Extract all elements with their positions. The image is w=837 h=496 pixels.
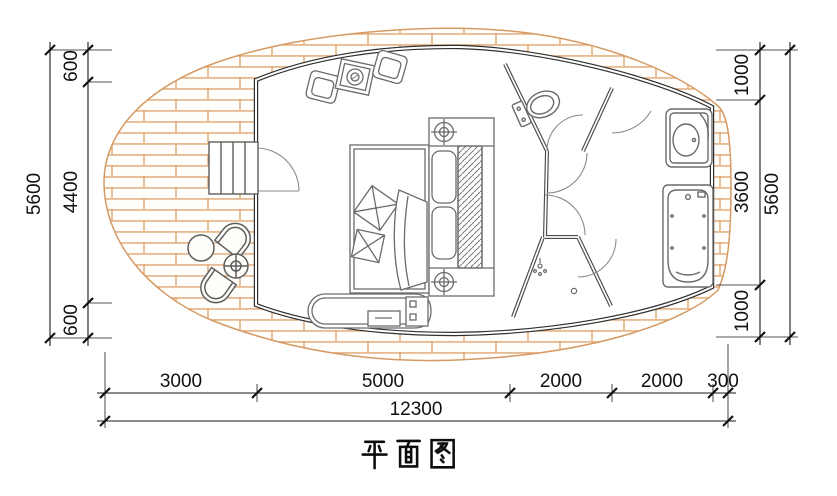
dim-right-total: 5600 (762, 173, 783, 215)
dim-right-seg-2: 1000 (732, 290, 753, 332)
tv-cabinet (308, 294, 431, 328)
dim-bottom-seg-2: 2000 (540, 371, 582, 392)
dim-right-seg-0: 1000 (732, 54, 753, 96)
dim-left-seg-2: 600 (61, 304, 82, 336)
dim-right-seg-1: 3600 (732, 171, 753, 213)
dim-bottom-seg-4: 300 (707, 371, 739, 392)
pillow (432, 207, 456, 259)
dim-bottom-seg-3: 2000 (641, 371, 683, 392)
bathtub (663, 185, 713, 287)
double-bed (350, 145, 429, 293)
dim-bottom-seg-1: 5000 (362, 371, 404, 392)
dim-left-total: 5600 (24, 173, 45, 215)
side-table (335, 59, 374, 95)
wardrobe (458, 146, 482, 268)
cushion (351, 229, 384, 262)
dim-left-seg-0: 600 (61, 50, 82, 82)
dim-left-seg-1: 4400 (61, 171, 82, 213)
page-title: 平面图 (362, 436, 454, 469)
floor-plan-canvas: 5600 600 4400 600 1000 3600 1000 5600 30… (0, 0, 837, 496)
outdoor-round-table (188, 235, 214, 261)
duvet-fold (394, 190, 427, 290)
bedhead-unit (429, 118, 494, 296)
washbasin (666, 109, 712, 167)
entry-stairs (209, 142, 258, 194)
dim-bottom-seg-0: 3000 (160, 371, 202, 392)
floor-plan-page: 5600 600 4400 600 1000 3600 1000 5600 30… (0, 0, 837, 496)
dim-bottom-total: 12300 (390, 399, 443, 420)
pillow (432, 151, 456, 203)
outdoor-side-table (224, 254, 248, 278)
